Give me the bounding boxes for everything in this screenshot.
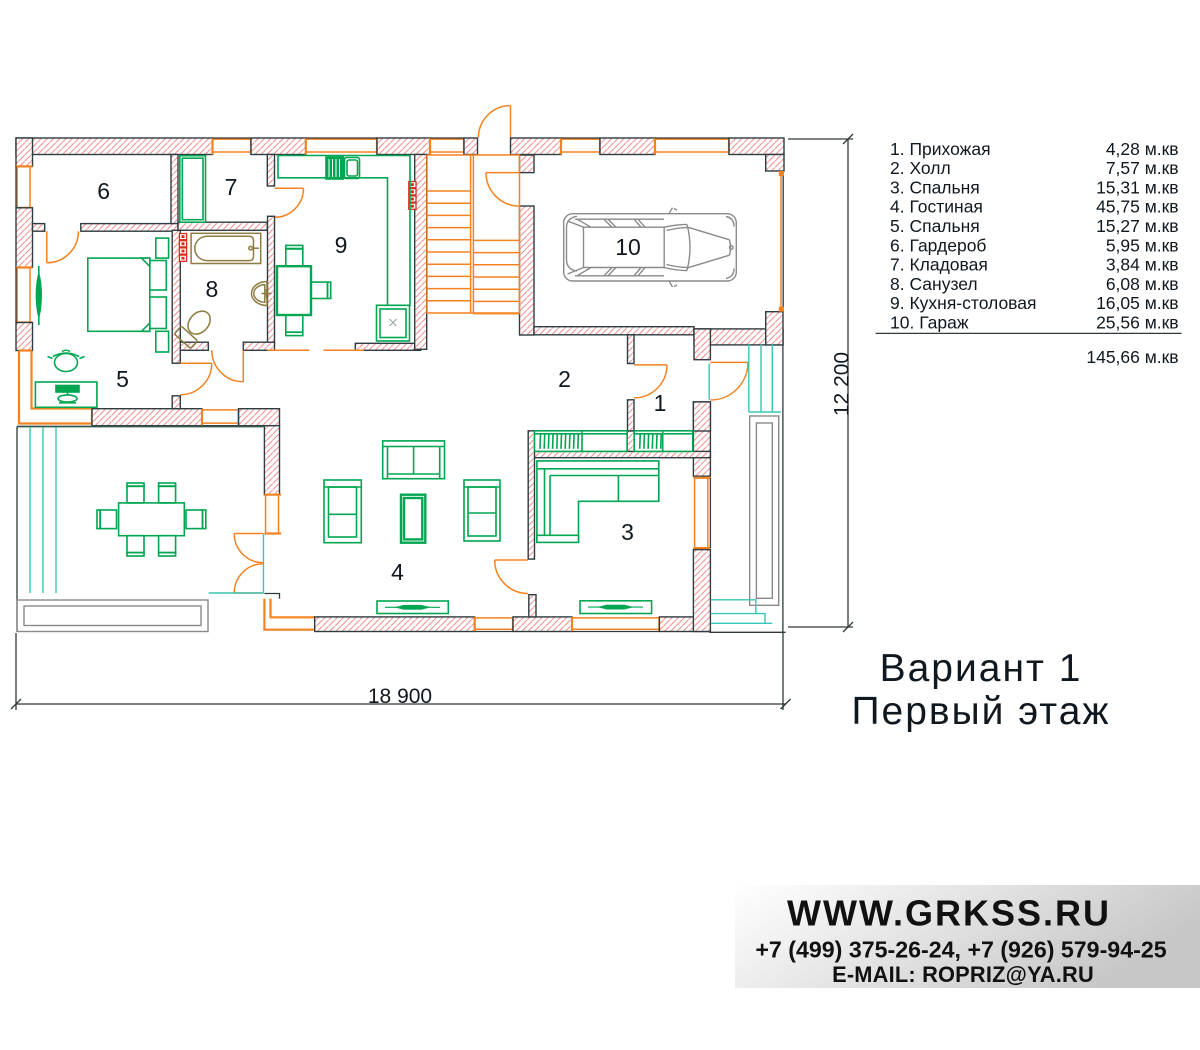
- svg-text:1: 1: [654, 390, 667, 416]
- svg-text:16,05 м.кв: 16,05 м.кв: [1096, 293, 1179, 313]
- svg-text:7,57 м.кв: 7,57 м.кв: [1106, 158, 1179, 178]
- svg-text:Вариант 1: Вариант 1: [880, 647, 1083, 690]
- svg-text:18 900: 18 900: [368, 685, 432, 708]
- svg-text:4,28 м.кв: 4,28 м.кв: [1106, 139, 1179, 159]
- svg-text:3,84 м.кв: 3,84 м.кв: [1106, 255, 1179, 275]
- svg-text:2. Холл: 2. Холл: [890, 158, 951, 178]
- svg-text:+7 (499) 375-26-24, +7 (926) 5: +7 (499) 375-26-24, +7 (926) 579-94-25: [755, 937, 1166, 963]
- svg-text:5. Спальня: 5. Спальня: [890, 216, 980, 236]
- svg-text:7: 7: [225, 174, 238, 200]
- svg-text:8: 8: [206, 276, 219, 302]
- svg-text:15,31 м.кв: 15,31 м.кв: [1096, 177, 1179, 197]
- svg-text:9: 9: [335, 232, 348, 258]
- svg-text:12 200: 12 200: [831, 352, 854, 416]
- svg-text:3: 3: [621, 519, 634, 545]
- svg-text:4. Гостиная: 4. Гостиная: [890, 197, 983, 217]
- svg-text:3. Спальня: 3. Спальня: [890, 177, 980, 197]
- svg-text:9. Кухня-столовая: 9. Кухня-столовая: [890, 293, 1037, 313]
- svg-text:10. Гараж: 10. Гараж: [890, 313, 969, 333]
- svg-text:7. Кладовая: 7. Кладовая: [890, 255, 988, 275]
- svg-text:145,66 м.кв: 145,66 м.кв: [1086, 347, 1178, 367]
- svg-text:6,08 м.кв: 6,08 м.кв: [1106, 274, 1179, 294]
- svg-text:45,75 м.кв: 45,75 м.кв: [1096, 197, 1179, 217]
- svg-text:4: 4: [391, 559, 404, 585]
- svg-text:5,95 м.кв: 5,95 м.кв: [1106, 235, 1179, 255]
- svg-text:2: 2: [558, 366, 571, 392]
- svg-text:6. Гардероб: 6. Гардероб: [890, 235, 986, 255]
- svg-text:6: 6: [97, 178, 110, 204]
- svg-text:E-MAIL: ROPRIZ@YA.RU: E-MAIL: ROPRIZ@YA.RU: [832, 962, 1094, 987]
- svg-text:WWW.GRKSS.RU: WWW.GRKSS.RU: [787, 893, 1111, 934]
- svg-text:5: 5: [116, 366, 129, 392]
- svg-text:15,27 м.кв: 15,27 м.кв: [1096, 216, 1179, 236]
- svg-text:25,56 м.кв: 25,56 м.кв: [1096, 313, 1179, 333]
- svg-text:10: 10: [615, 234, 641, 260]
- svg-text:Первый этаж: Первый этаж: [851, 690, 1110, 733]
- svg-text:8. Санузел: 8. Санузел: [890, 274, 978, 294]
- svg-text:1. Прихожая: 1. Прихожая: [890, 139, 991, 159]
